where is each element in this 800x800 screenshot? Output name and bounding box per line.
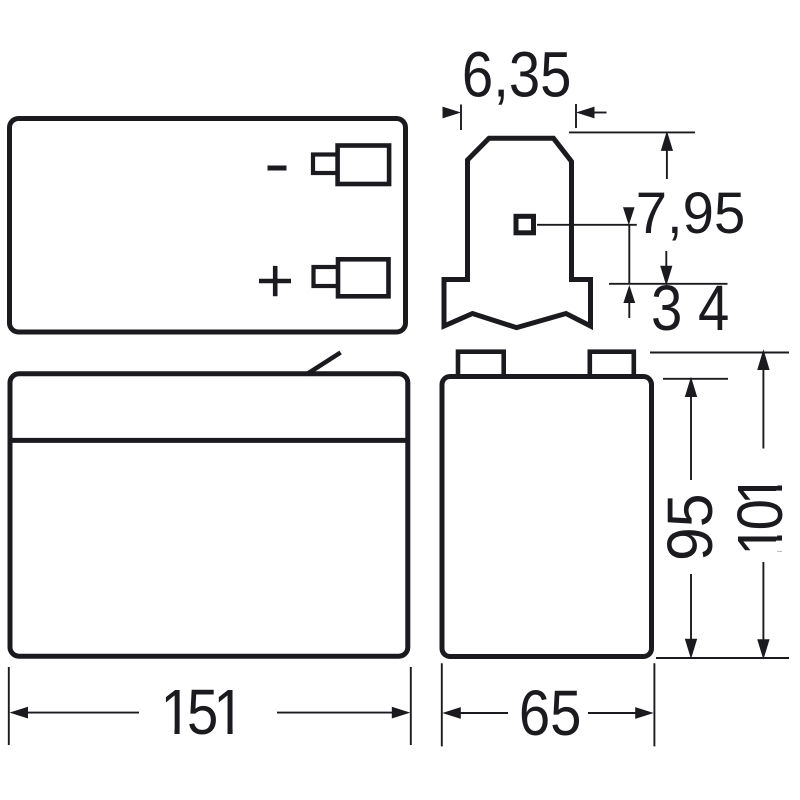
svg-text:151: 151 [160,676,242,748]
svg-text:101: 101 [724,476,796,555]
svg-text:95: 95 [655,493,727,561]
svg-text:65: 65 [519,677,582,749]
svg-text:3 4: 3 4 [651,272,729,344]
svg-text:6,35: 6,35 [462,38,572,110]
svg-text:7,95: 7,95 [636,181,745,246]
